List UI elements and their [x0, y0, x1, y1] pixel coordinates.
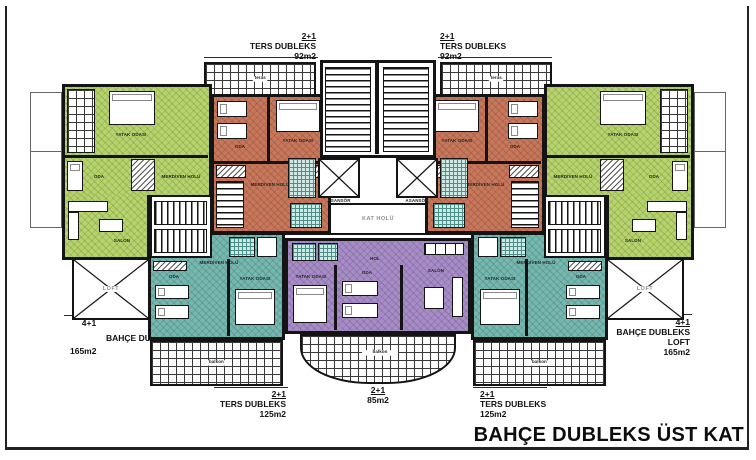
- double-bed: [109, 91, 155, 125]
- single-bed: [217, 101, 247, 117]
- leader-line: [473, 387, 547, 388]
- unit-label-center: 2+1 85m2: [338, 385, 418, 405]
- unit-name: TERS DUBLEKS: [480, 399, 570, 409]
- terrace-divider: [31, 151, 61, 152]
- double-bed: [435, 100, 479, 132]
- room-label: HOL: [362, 257, 389, 262]
- unit-type: 2+1: [338, 385, 418, 395]
- elevator-right: [396, 158, 438, 198]
- unit-area-garden-left: 165m2: [70, 346, 106, 356]
- closet: [509, 165, 539, 178]
- terrace-top-left: teras: [204, 62, 316, 96]
- loft-label: LOFT: [635, 286, 655, 292]
- unit-type: 2+1: [480, 389, 570, 399]
- sofa: [452, 277, 463, 317]
- elevator-left: [318, 158, 360, 198]
- drawing-title: BAHÇE DUBLEKS ÜST KAT: [430, 424, 744, 447]
- unit-area: 92m2: [440, 51, 540, 61]
- inner-wall: [400, 265, 403, 330]
- double-bed: [276, 100, 320, 132]
- loft-void-left: LOFT: [72, 258, 150, 320]
- room-label: MERDİVEN HOLÜ: [551, 175, 594, 180]
- unit-area: 165m2: [600, 347, 690, 357]
- duplex-stairs: [216, 181, 244, 228]
- unit-label-top-right: 2+1 TERS DUBLEKS 92m2: [440, 31, 540, 61]
- inner-wall: [65, 155, 208, 158]
- closet: [568, 261, 602, 271]
- single-bed: [217, 123, 247, 139]
- duplex-stairs: [511, 181, 539, 228]
- bathroom: [290, 203, 322, 228]
- unit-type: 2+1: [200, 389, 286, 399]
- unit-area: 85m2: [338, 395, 418, 405]
- balcony-teal-left: balkon: [150, 340, 283, 386]
- balcony-label: balkon: [207, 361, 226, 366]
- unit-area: 92m2: [230, 51, 316, 61]
- sofa-arm: [676, 212, 687, 240]
- duplex-stairs: [548, 229, 601, 253]
- single-bed: [67, 161, 83, 191]
- open-terrace-left: [30, 92, 62, 228]
- room-label: SALON: [418, 269, 454, 274]
- inner-wall: [227, 259, 230, 336]
- unit-name: TERS DUBLEKS: [200, 399, 286, 409]
- single-bed: [155, 285, 189, 299]
- single-bed: [508, 123, 538, 139]
- stairwell-block: [320, 60, 436, 158]
- unit-label-garden-right: 4+1 BAHÇE DUBLEKS LOFT 165m2: [600, 317, 690, 357]
- balcony-label: balkon: [362, 350, 398, 355]
- double-bed: [235, 289, 275, 325]
- elevator-x-icon: [398, 160, 436, 196]
- stair-hall-left: [150, 195, 212, 258]
- bathroom: [318, 243, 338, 261]
- room-label: YATAK ODASI: [292, 275, 330, 280]
- unit-area: 125m2: [200, 409, 286, 419]
- room-label: MERDİVEN HOLÜ: [247, 183, 294, 188]
- room-label: SALON: [105, 239, 139, 244]
- inner-wall: [334, 265, 337, 330]
- stair-flight: [383, 67, 429, 152]
- room-label: MERDİVEN HOLÜ: [159, 175, 202, 180]
- room-label: MERDİVEN HOLÜ: [462, 183, 509, 188]
- sofa: [647, 201, 687, 212]
- stair-flight: [325, 67, 371, 152]
- duplex-stairs: [154, 229, 207, 253]
- duplex-stairs: [154, 201, 207, 225]
- closet: [216, 165, 246, 178]
- inner-wall: [267, 97, 270, 161]
- room-label: ODA: [355, 271, 378, 276]
- unit-label-bottom-right: 2+1 TERS DUBLEKS 125m2: [480, 389, 570, 419]
- unit-name: TERS DUBLEKS: [440, 41, 540, 51]
- room-label: ODA: [568, 275, 595, 280]
- bathroom: [433, 203, 465, 228]
- room-label: YATAK ODASI: [596, 133, 650, 138]
- inner-wall: [485, 97, 488, 161]
- closet: [131, 159, 155, 191]
- unit-type: 2+1: [230, 31, 316, 41]
- open-terrace-right: [694, 92, 726, 228]
- unit-bahce-dubleks-right-living: SALON: [606, 195, 694, 260]
- balcony-label: balkon: [530, 361, 549, 366]
- unit-bahce-dubleks-left-top: YATAK ODASI ODA MERDİVEN HOLÜ: [62, 84, 212, 198]
- unit-area: 125m2: [480, 409, 570, 419]
- terrace-label: teras: [253, 77, 268, 82]
- elevator-left-label: ASANSÖR: [315, 199, 364, 204]
- single-bed: [342, 281, 378, 296]
- unit-name: BAHÇE DUBLEKS: [600, 327, 690, 337]
- room-label: ODA: [161, 275, 188, 280]
- elevator-x-icon: [320, 160, 358, 196]
- elevator-right-label: ASANSÖR: [393, 199, 442, 204]
- core-bath-left: [288, 158, 316, 198]
- sofa: [68, 201, 108, 212]
- terrace-top-right: teras: [440, 62, 552, 96]
- bathroom: [229, 237, 255, 257]
- room-label: YATAK ODASI: [480, 277, 520, 282]
- unit-label-bottom-left: 2+1 TERS DUBLEKS 125m2: [200, 389, 286, 419]
- floor-hall-label: KAT HOLÜ: [362, 216, 394, 222]
- terrace-divider: [695, 151, 725, 152]
- unit-type: 2+1: [440, 31, 540, 41]
- unit-name: TERS DUBLEKS: [230, 41, 316, 51]
- coffee-table: [424, 287, 444, 309]
- single-bed: [566, 285, 600, 299]
- balcony-teal-right: balkon: [473, 340, 606, 386]
- sofa-arm: [68, 212, 79, 240]
- unit-label-top-left: 2+1 TERS DUBLEKS 92m2: [230, 31, 316, 61]
- coffee-table: [99, 219, 123, 232]
- floor-plan: BAHÇE DUBLEKS ÜST KAT ASANSÖR ASANSÖR KA…: [0, 0, 756, 460]
- inner-wall: [547, 155, 690, 158]
- closet: [600, 159, 624, 191]
- single-bed: [508, 101, 538, 117]
- loft-void-right: LOFT: [606, 258, 684, 320]
- duplex-stairs: [548, 201, 601, 225]
- single-bed: [566, 305, 600, 319]
- bathroom: [292, 243, 316, 261]
- room-label: MERDİVEN HOLÜ: [194, 261, 244, 266]
- room-label: MERDİVEN HOLÜ: [511, 261, 561, 266]
- double-bed: [293, 285, 327, 323]
- unit-type: 4+1: [600, 317, 690, 327]
- leader-line: [214, 387, 288, 388]
- wc: [257, 237, 277, 257]
- wc: [478, 237, 498, 257]
- unit-bahce-dubleks-right-top: YATAK ODASI ODA MERDİVEN HOLÜ: [544, 84, 694, 198]
- stair-core-wall: [375, 63, 379, 154]
- unit-bahce-dubleks-left-living: SALON: [62, 195, 150, 260]
- kitchen-counter: [424, 243, 464, 255]
- unit-loft: LOFT: [600, 337, 690, 347]
- single-bed: [155, 305, 189, 319]
- balcony-strip: [67, 89, 95, 153]
- terrace-label: teras: [489, 77, 504, 82]
- double-bed: [600, 91, 646, 125]
- core-bath-right: [440, 158, 468, 198]
- unit-name-garden-left: BAHÇE DUBLEKS: [106, 333, 150, 343]
- room-label: YATAK ODASI: [275, 139, 322, 144]
- room-label: YATAK ODASI: [434, 139, 481, 144]
- balcony-center: balkon: [300, 334, 456, 384]
- room-label: YATAK ODASI: [235, 277, 275, 282]
- single-bed: [342, 303, 378, 318]
- room-label: ODA: [497, 145, 533, 150]
- balcony-strip: [660, 89, 688, 153]
- room-label: ODA: [83, 175, 115, 180]
- room-label: ODA: [638, 175, 670, 180]
- loft-label: LOFT: [101, 286, 121, 292]
- closet: [153, 261, 187, 271]
- room-label: SALON: [616, 239, 650, 244]
- unit-center-85: HOL YATAK ODASI ODA SALON: [285, 238, 471, 334]
- coffee-table: [632, 219, 656, 232]
- single-bed: [672, 161, 688, 191]
- inner-wall: [525, 259, 528, 336]
- stair-hall-right: [544, 195, 606, 258]
- double-bed: [480, 289, 520, 325]
- room-label: ODA: [222, 145, 258, 150]
- room-label: YATAK ODASI: [104, 133, 158, 138]
- bathroom: [500, 237, 526, 257]
